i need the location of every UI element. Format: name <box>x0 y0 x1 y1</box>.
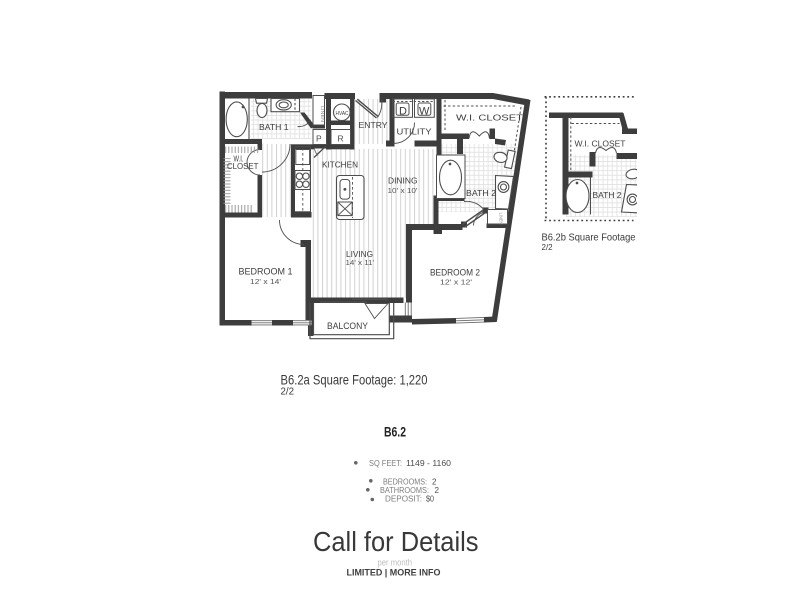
svg-text:BEDROOM 1: BEDROOM 1 <box>239 267 293 277</box>
svg-text:W: W <box>419 105 430 117</box>
svg-text:12' x 12': 12' x 12' <box>440 278 473 287</box>
svg-text:D: D <box>399 105 407 117</box>
svg-text:CLOSET: CLOSET <box>227 162 259 171</box>
svg-text:B6.2a Square Footage: 1,220: B6.2a Square Footage: 1,220 <box>281 372 428 388</box>
svg-text:Call for Details: Call for Details <box>313 525 479 557</box>
svg-text:14' x 11': 14' x 11' <box>346 258 375 267</box>
svg-text:DEPOSIT:: DEPOSIT: <box>385 495 422 504</box>
svg-text:$0: $0 <box>426 495 434 504</box>
svg-text:2: 2 <box>432 478 437 487</box>
svg-text:BATH 2: BATH 2 <box>593 191 623 200</box>
svg-text:HVAC: HVAC <box>336 111 349 117</box>
svg-text:BALCONY: BALCONY <box>327 321 369 332</box>
svg-text:2/2: 2/2 <box>542 243 554 252</box>
svg-text:DINING: DINING <box>388 177 418 186</box>
svg-text:B6.2b Square Footage: B6.2b Square Footage <box>542 233 636 244</box>
svg-text:LINEN: LINEN <box>320 106 325 122</box>
svg-text:LIMITED | MORE INFO: LIMITED | MORE INFO <box>347 568 441 578</box>
svg-text:1149 - 1160: 1149 - 1160 <box>406 459 452 468</box>
svg-text:BATH 1: BATH 1 <box>259 123 289 132</box>
svg-text:UTILITY: UTILITY <box>397 128 433 137</box>
svg-text:2/2: 2/2 <box>281 387 295 398</box>
svg-text:B6.2: B6.2 <box>384 425 406 440</box>
svg-text:KITCHEN: KITCHEN <box>322 161 358 170</box>
svg-text:10' x 10': 10' x 10' <box>388 186 419 195</box>
svg-text:ENTRY: ENTRY <box>359 121 389 130</box>
svg-text:W.I. CLOSET: W.I. CLOSET <box>575 140 626 149</box>
svg-text:LINEN: LINEN <box>498 213 503 225</box>
svg-text:W.I. CLOSET: W.I. CLOSET <box>456 113 523 123</box>
svg-text:SQ FEET:: SQ FEET: <box>369 459 402 468</box>
svg-text:P: P <box>316 134 322 144</box>
svg-text:12' x 14': 12' x 14' <box>250 277 282 286</box>
svg-text:BATH 2: BATH 2 <box>466 189 497 198</box>
svg-text:per month: per month <box>378 558 413 568</box>
svg-text:BEDROOMS:: BEDROOMS: <box>383 478 427 487</box>
svg-text:2: 2 <box>435 486 440 495</box>
svg-text:BEDROOM 2: BEDROOM 2 <box>430 268 480 278</box>
svg-text:R: R <box>338 134 344 144</box>
